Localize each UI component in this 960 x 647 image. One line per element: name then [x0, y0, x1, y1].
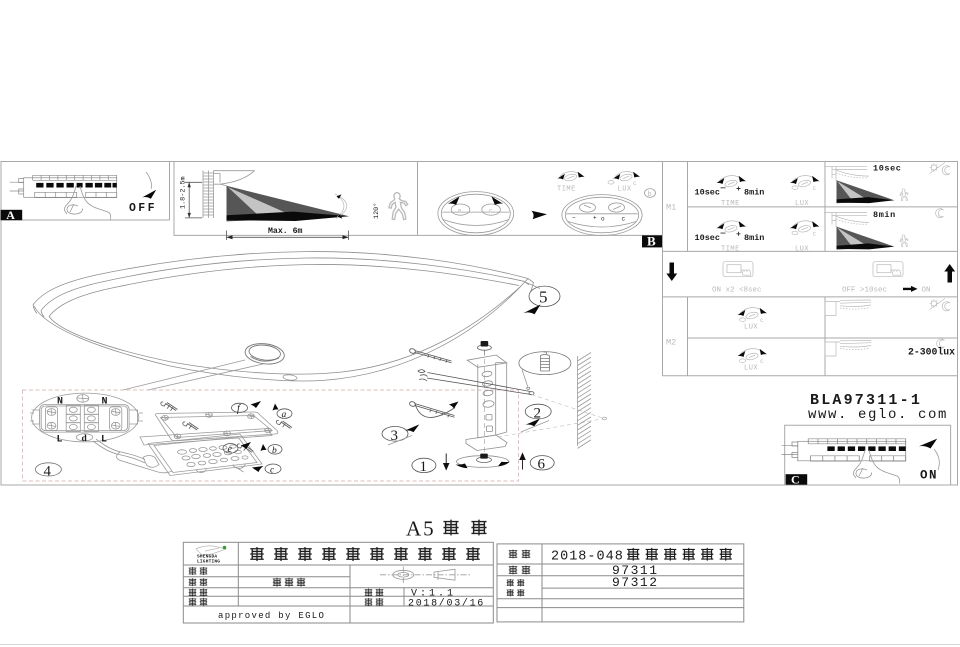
svg-text:b: b: [648, 191, 652, 199]
svg-text:4: 4: [44, 464, 52, 480]
svg-text:ON: ON: [920, 469, 938, 483]
svg-text:C: C: [791, 473, 800, 487]
svg-text:−: −: [572, 215, 576, 222]
svg-text:approved by EGLO: approved by EGLO: [218, 611, 325, 621]
svg-text:10sec: 10sec: [873, 164, 902, 174]
svg-text:10sec: 10sec: [695, 233, 721, 243]
svg-text:M2: M2: [666, 338, 676, 348]
svg-text:1: 1: [420, 459, 428, 475]
svg-text:6: 6: [538, 457, 546, 473]
svg-text:www. eglo. com: www. eglo. com: [808, 407, 948, 423]
svg-text:LUX: LUX: [744, 324, 758, 332]
svg-text:2-300lux: 2-300lux: [908, 347, 955, 358]
svg-text:OFF >10sec: OFF >10sec: [842, 287, 887, 295]
svg-text:A5: A5: [406, 517, 436, 541]
svg-text:ON: ON: [922, 287, 931, 295]
svg-text:LUX: LUX: [744, 365, 758, 373]
svg-text:LUX: LUX: [795, 245, 809, 253]
svg-text:2: 2: [534, 406, 542, 422]
svg-text:c: c: [622, 216, 626, 223]
svg-text:d: d: [82, 434, 88, 444]
svg-text:a: a: [458, 208, 462, 215]
svg-text:8min: 8min: [744, 233, 764, 243]
svg-text:8min: 8min: [873, 210, 896, 220]
svg-text:L: L: [101, 435, 107, 446]
svg-text:5: 5: [539, 288, 548, 307]
svg-text:a: a: [282, 410, 287, 420]
svg-text:B: B: [647, 234, 656, 249]
svg-text:ON x2 <8sec: ON x2 <8sec: [712, 287, 762, 295]
svg-text:A: A: [6, 208, 15, 222]
svg-text:L: L: [57, 435, 63, 446]
svg-text:LUX: LUX: [618, 186, 632, 194]
svg-text:+: +: [593, 215, 597, 222]
svg-text:10sec: 10sec: [695, 188, 721, 198]
svg-text:TIME: TIME: [557, 186, 576, 194]
svg-text:Max. 6m: Max. 6m: [268, 227, 302, 236]
svg-text:8min: 8min: [744, 188, 764, 198]
svg-text:e: e: [228, 444, 233, 455]
svg-text:N: N: [102, 397, 108, 408]
svg-text:LUX: LUX: [795, 200, 809, 208]
svg-text:M1: M1: [666, 203, 676, 213]
svg-text:b: b: [272, 446, 277, 456]
svg-text:c: c: [489, 208, 493, 215]
svg-text:TIME: TIME: [721, 200, 740, 208]
svg-text:2018/03/16: 2018/03/16: [408, 597, 485, 609]
svg-text:c: c: [633, 180, 637, 187]
svg-text:1.8-2.5m: 1.8-2.5m: [180, 176, 188, 209]
svg-text:LIGHTING: LIGHTING: [197, 559, 220, 565]
svg-text:N: N: [57, 397, 63, 408]
svg-text:97312: 97312: [612, 575, 659, 590]
svg-text:TIME: TIME: [721, 245, 740, 253]
svg-text:OFF: OFF: [129, 202, 157, 215]
svg-text:o: o: [601, 216, 605, 223]
svg-text:120°: 120°: [372, 203, 381, 219]
